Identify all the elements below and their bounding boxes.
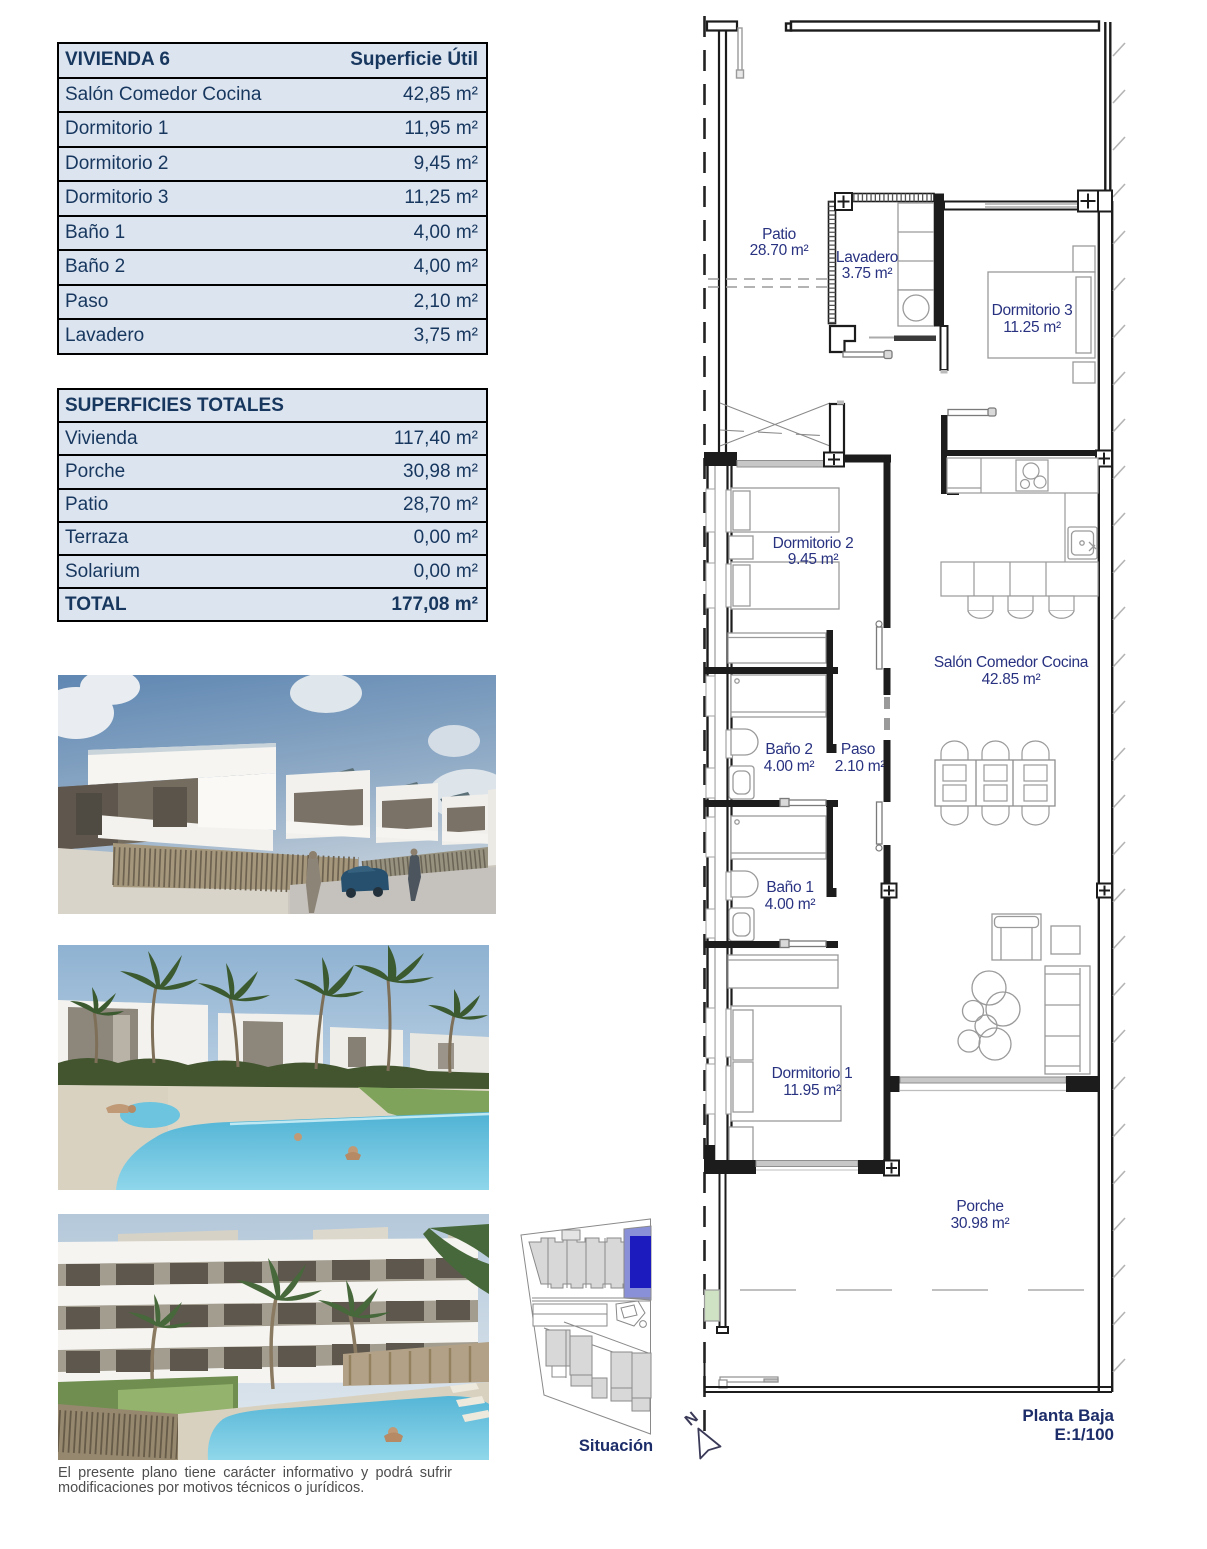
- svg-text:Patio: Patio: [762, 226, 796, 243]
- svg-text:4.00 m²: 4.00 m²: [765, 896, 816, 913]
- svg-text:Paso: Paso: [841, 741, 875, 758]
- svg-text:30.98 m²: 30.98 m²: [951, 1215, 1010, 1232]
- svg-text:2.10 m²: 2.10 m²: [835, 758, 886, 775]
- svg-text:Porche: Porche: [956, 1198, 1003, 1215]
- svg-text:Dormitorio 3: Dormitorio 3: [992, 302, 1073, 319]
- svg-text:Salón Comedor Cocina: Salón Comedor Cocina: [934, 654, 1089, 671]
- svg-text:Lavadero: Lavadero: [836, 249, 898, 266]
- svg-text:Baño 1: Baño 1: [766, 879, 813, 896]
- svg-text:28.70 m²: 28.70 m²: [750, 242, 809, 259]
- svg-text:Baño 2: Baño 2: [765, 741, 812, 758]
- svg-text:Dormitorio 1: Dormitorio 1: [772, 1065, 853, 1082]
- svg-text:9.45 m²: 9.45 m²: [788, 551, 839, 568]
- svg-text:N: N: [682, 1409, 702, 1429]
- svg-text:11.25 m²: 11.25 m²: [1003, 319, 1061, 336]
- svg-text:Dormitorio 2: Dormitorio 2: [773, 535, 854, 552]
- svg-text:42.85 m²: 42.85 m²: [982, 671, 1041, 688]
- svg-text:Planta Baja: Planta Baja: [1022, 1406, 1114, 1425]
- svg-text:11.95 m²: 11.95 m²: [783, 1082, 841, 1099]
- svg-text:3.75 m²: 3.75 m²: [842, 265, 893, 282]
- svg-text:4.00 m²: 4.00 m²: [764, 758, 815, 775]
- svg-text:E:1/100: E:1/100: [1054, 1425, 1114, 1444]
